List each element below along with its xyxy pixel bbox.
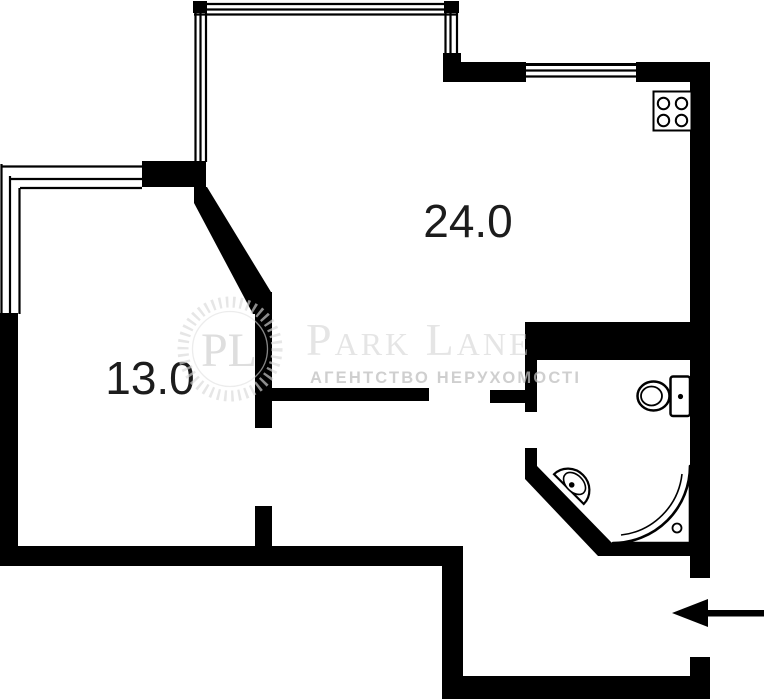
arrow-head: [672, 599, 708, 627]
wall: [0, 313, 18, 566]
watermark-monogram: PL: [201, 324, 257, 377]
window: [446, 13, 458, 55]
toilet-icon: [638, 377, 691, 417]
stove-icon: [654, 92, 692, 131]
wall: [265, 388, 429, 401]
wall: [255, 506, 272, 546]
fixtures: [554, 92, 692, 544]
window: [526, 62, 636, 82]
window: [196, 13, 207, 162]
wall: [525, 322, 710, 360]
wall: [142, 161, 206, 187]
shower-icon: [613, 466, 690, 543]
watermark: PL Park Lane АГЕНТСТВО НЕРУХОМОСТІ: [183, 302, 581, 396]
wall: [193, 1, 207, 13]
wall: [444, 1, 459, 13]
entrance-arrow: [672, 599, 764, 627]
wall: [525, 448, 537, 466]
watermark-subtitle: АГЕНТСТВО НЕРУХОМОСТІ: [310, 369, 581, 387]
room-area-label: 13.0: [105, 352, 195, 404]
wall: [690, 62, 710, 578]
floor-plan: 24.0 13.0 PL Park Lane АГЕНТСТВО НЕРУХОМ…: [0, 0, 764, 699]
wall: [0, 546, 463, 566]
window: [2, 164, 20, 314]
room-area-label: 24.0: [423, 195, 513, 247]
watermark-brand: Park Lane: [306, 314, 532, 365]
wall: [442, 676, 710, 699]
window: [194, 4, 458, 15]
windows: [1, 4, 636, 314]
floorplan-canvas: 24.0 13.0 PL Park Lane АГЕНТСТВО НЕРУХОМ…: [0, 0, 764, 699]
wall: [690, 657, 710, 699]
diagonal-wall: [194, 187, 271, 314]
wall: [490, 390, 525, 403]
window: [1, 167, 142, 189]
